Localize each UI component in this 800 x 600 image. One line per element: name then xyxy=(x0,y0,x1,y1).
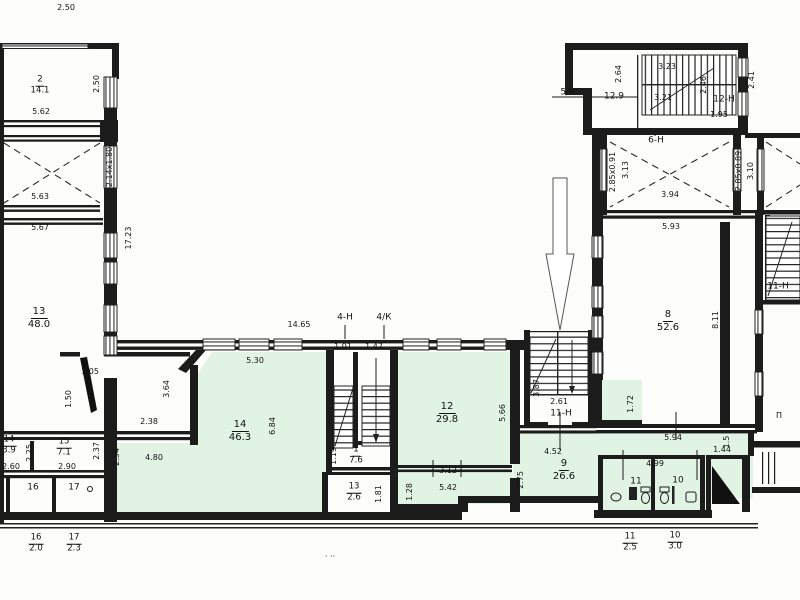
plan-linework xyxy=(0,0,800,600)
dim: 3.23 xyxy=(658,63,676,71)
dim: 2.90 xyxy=(58,463,76,471)
dim: 1.72 xyxy=(627,395,635,413)
dim: 5.30 xyxy=(246,357,264,365)
dim: 3.12 xyxy=(439,467,457,475)
dim: 5.93 xyxy=(662,223,680,231)
hall-label-4k: 4/К xyxy=(376,314,391,323)
dim: 5.42 xyxy=(439,484,457,492)
dim: 4.52 xyxy=(544,448,562,456)
dim: 5.62 xyxy=(32,108,50,116)
dim: 2.14x1.80 xyxy=(106,147,114,187)
symbol-mark xyxy=(88,487,93,492)
dim: 1.28 xyxy=(406,483,414,501)
dim: 3.94 xyxy=(661,191,679,199)
dim: 2.75 xyxy=(517,471,525,489)
footer-label-10: 103.0 xyxy=(668,532,683,553)
room-label-14: 1446.3 xyxy=(229,419,251,443)
dim: 2.54 xyxy=(113,448,121,466)
entrance-arrow xyxy=(546,178,574,330)
dim: 3.13 xyxy=(622,161,630,179)
dim: 2.41 xyxy=(748,71,756,89)
dim: 2.38 xyxy=(140,418,158,426)
dim: 5.63 xyxy=(31,193,49,201)
dim: 2.50 xyxy=(57,4,75,12)
hall-label-5k: 5/К xyxy=(560,89,575,98)
dim: 8.11 xyxy=(712,311,720,329)
room-label-1: 17.6 xyxy=(349,446,363,467)
dim: 2.64 xyxy=(615,65,623,83)
dim: 3.64 xyxy=(163,380,171,398)
dim: 2.85x0.91 xyxy=(609,152,617,192)
dim: 2.60 xyxy=(2,463,20,471)
dim: 2.61 xyxy=(550,398,568,406)
room-label-13: 1348.0 xyxy=(28,306,50,330)
room-label-15: 157.1 xyxy=(57,438,72,459)
room-label-14s: 143.9 xyxy=(2,436,17,457)
dim: 2.85x0.89 xyxy=(735,151,743,191)
room-label-13s: 132.6 xyxy=(347,483,362,504)
room-label-8: 852.6 xyxy=(657,309,679,333)
dim: 1.05 xyxy=(81,368,99,376)
stray-dots: · ·· xyxy=(325,553,335,561)
dim: 1.01 xyxy=(334,343,352,351)
dim: 12.9 xyxy=(604,93,624,102)
dim: 17.23 xyxy=(125,227,133,250)
room-label-2: 214.1 xyxy=(31,76,50,97)
dim: 2.50 xyxy=(93,75,101,93)
dim: 1.44 xyxy=(713,446,731,454)
dim: 4.99 xyxy=(646,460,664,468)
footer-label-17: 172.3 xyxy=(67,534,82,555)
footer-label-11: 112.5 xyxy=(623,533,638,554)
dim: 1.81 xyxy=(375,485,383,503)
dim: 6.84 xyxy=(269,417,277,435)
footer-label-16: 162.0 xyxy=(29,534,44,555)
room-label-10: 10 xyxy=(672,477,683,486)
room-label-17: 17 xyxy=(68,484,79,493)
hall-label-12n: 12-Н xyxy=(713,96,734,105)
dim: 2.46 xyxy=(700,76,708,94)
dim: 2.25 xyxy=(26,444,34,462)
pi-mark: П xyxy=(776,412,782,420)
dim: 2.37 xyxy=(93,442,101,460)
dim: 1.50 xyxy=(65,390,73,408)
floor-plan: 2.50 214.1 5.62 2.50 2.14x1.80 5.63 5.67… xyxy=(0,0,800,600)
dim: 5.66 xyxy=(499,404,507,422)
dim: 1.95 xyxy=(710,111,728,119)
dim: 3.10 xyxy=(747,162,755,180)
dim: 3.21 xyxy=(654,94,672,102)
room-label-11: 11 xyxy=(630,478,641,487)
dim: 3.87 xyxy=(533,379,541,397)
hall-label-11n: 11-Н xyxy=(550,410,571,419)
room-label-9: 926.6 xyxy=(553,458,575,482)
hall-label-11n-right: 11-Н xyxy=(767,283,788,292)
dim: 14.65 xyxy=(288,321,311,329)
door-leaf xyxy=(80,357,97,413)
dim: 4.80 xyxy=(145,454,163,462)
hall-label-4n: 4-Н xyxy=(337,314,353,323)
dim: 1.47 xyxy=(365,343,383,351)
crossed-room-marks xyxy=(4,142,800,207)
hall-label-6n: 6-Н xyxy=(648,137,664,146)
dim: 1.19 xyxy=(330,447,338,465)
dim: 5.67 xyxy=(31,224,49,232)
room-label-16: 16 xyxy=(27,484,38,493)
dim: 5.94 xyxy=(664,434,682,442)
room-label-12: 1229.8 xyxy=(436,401,458,425)
